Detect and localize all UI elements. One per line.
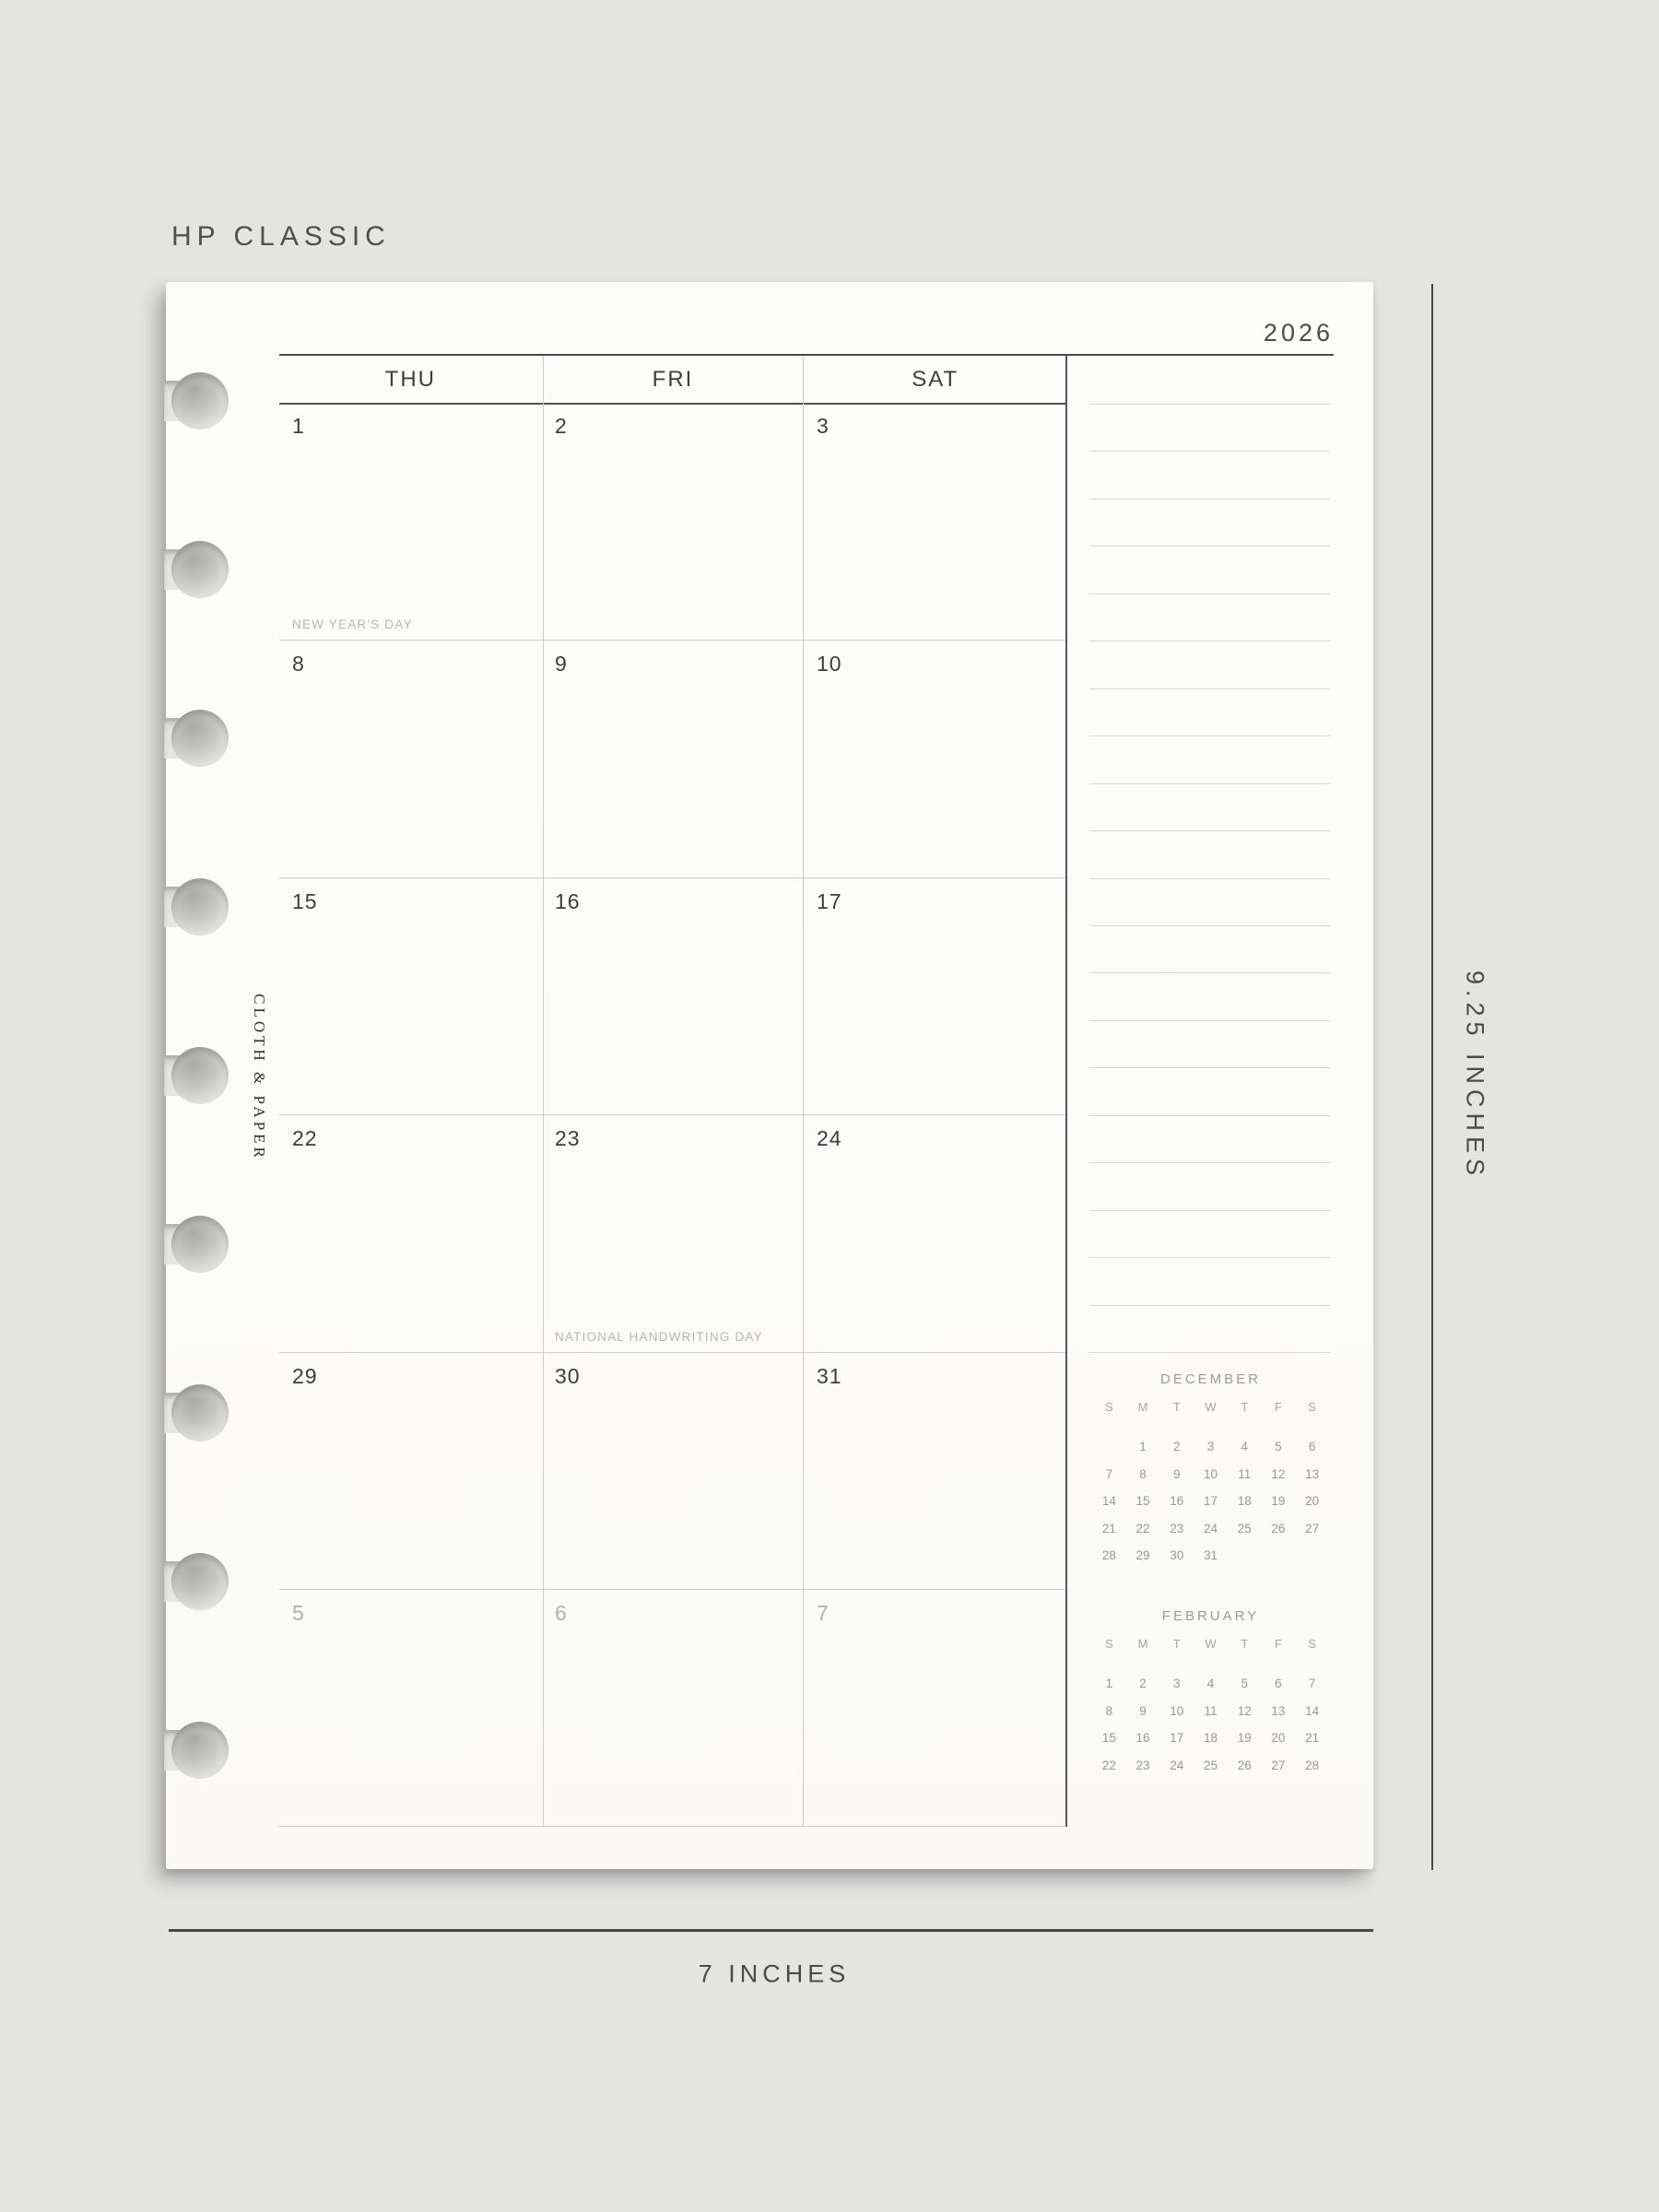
- calendar-cell: 29: [279, 1353, 542, 1590]
- mini-cal-day: 30: [1159, 1542, 1194, 1570]
- disc-icon: [171, 1384, 229, 1441]
- note-line: [1089, 499, 1330, 500]
- disc-icon: [171, 541, 229, 598]
- mini-calendar-title: FEBRUARY: [1092, 1605, 1329, 1629]
- calendar-cell: 1 NEW YEAR'S DAY: [279, 403, 542, 640]
- calendar-cell: 7: [804, 1590, 1066, 1827]
- calendar-cell: 2: [542, 403, 805, 640]
- mini-calendar-title: DECEMBER: [1092, 1368, 1329, 1392]
- note-line: [1089, 1067, 1330, 1068]
- height-measure-label: 9.25 INCHES: [1461, 971, 1489, 1181]
- notes-divider-line: [1065, 356, 1067, 1827]
- mini-cal-day: 4: [1194, 1670, 1228, 1698]
- mini-cal-day: 25: [1228, 1515, 1262, 1543]
- mini-cal-weekday: F: [1262, 1632, 1296, 1656]
- height-measure-line: [1431, 284, 1433, 1870]
- mini-cal-day: 14: [1295, 1698, 1329, 1725]
- date-number: 9: [555, 652, 568, 677]
- mini-cal-day: 16: [1159, 1488, 1194, 1515]
- brand-logo-vertical: CLOTH & PAPER: [250, 994, 268, 1161]
- mini-cal-day: 7: [1092, 1461, 1126, 1488]
- mini-cal-day: 27: [1295, 1515, 1329, 1543]
- mini-cal-weekday: T: [1228, 1632, 1262, 1656]
- disc-icon: [171, 1047, 229, 1104]
- mini-cal-day: 1: [1092, 1670, 1126, 1698]
- mini-cal-weekday: T: [1159, 1632, 1194, 1656]
- mini-cal-weekday: T: [1228, 1395, 1262, 1419]
- mini-cal-day: 9: [1159, 1461, 1194, 1488]
- mini-calendar-december: DECEMBER SMTWTFS 12345678910111213141516…: [1092, 1368, 1329, 1580]
- mini-cal-day: 11: [1194, 1698, 1228, 1725]
- mini-cal-weekday: M: [1126, 1632, 1160, 1656]
- calendar-cell: 15: [279, 878, 542, 1115]
- mini-cal-day: 4: [1228, 1433, 1262, 1461]
- disc-icon: [171, 1722, 229, 1779]
- mini-calendar-grid: 1234567891011121314151617181920212223242…: [1092, 1670, 1329, 1779]
- note-line: [1089, 1257, 1330, 1258]
- monthly-grid: THU FRI SAT 1 NEW YEAR'S DAY 2 3 8: [279, 356, 1066, 1827]
- note-line: [1089, 1352, 1330, 1353]
- disc-icon: [171, 1553, 229, 1610]
- holiday-label: NEW YEAR'S DAY: [292, 618, 413, 631]
- calendar-cell: 23 NATIONAL HANDWRITING DAY: [542, 1115, 805, 1352]
- mini-cal-day: 3: [1159, 1670, 1194, 1698]
- mini-cal-day: 21: [1092, 1515, 1126, 1543]
- note-line: [1089, 735, 1330, 736]
- mini-cal-day: [1295, 1542, 1329, 1570]
- mini-cal-day: 8: [1126, 1461, 1160, 1488]
- mini-cal-day: 9: [1126, 1698, 1160, 1725]
- mini-cal-day: 20: [1295, 1488, 1329, 1515]
- date-number: 17: [817, 889, 842, 914]
- calendar-cell: 22: [279, 1115, 542, 1352]
- note-line: [1089, 925, 1330, 926]
- mini-cal-day: 6: [1295, 1433, 1329, 1461]
- date-number: 5: [292, 1601, 305, 1626]
- weekday-header: FRI: [542, 356, 805, 403]
- mini-cal-day: 3: [1194, 1433, 1228, 1461]
- mini-cal-weekday: F: [1262, 1395, 1296, 1419]
- mini-cal-day: 10: [1159, 1698, 1194, 1725]
- mini-cal-day: 28: [1295, 1752, 1329, 1780]
- date-number: 31: [817, 1364, 842, 1389]
- mini-cal-day: 13: [1262, 1698, 1296, 1725]
- disc-icon: [171, 878, 229, 935]
- mini-cal-day: 27: [1262, 1752, 1296, 1780]
- date-number: 1: [292, 414, 305, 439]
- mini-cal-day: 10: [1194, 1461, 1228, 1488]
- holiday-label: NATIONAL HANDWRITING DAY: [555, 1330, 763, 1344]
- mini-cal-day: 13: [1295, 1461, 1329, 1488]
- mini-cal-day: [1092, 1433, 1126, 1461]
- mini-cal-day: 1: [1126, 1433, 1160, 1461]
- note-line: [1089, 451, 1330, 452]
- disc-icon: [171, 710, 229, 767]
- planner-product-mockup: HP CLASSIC 9.25 INCHES 7 INCHES CLOTH & …: [0, 0, 1659, 2212]
- mini-cal-day: 6: [1262, 1670, 1296, 1698]
- calendar-cell: 3: [804, 403, 1066, 640]
- mini-cal-day: 21: [1295, 1724, 1329, 1752]
- mini-cal-day: 24: [1159, 1752, 1194, 1780]
- note-line: [1089, 1020, 1330, 1021]
- disc-icon: [171, 1216, 229, 1273]
- weekday-header: SAT: [804, 356, 1066, 403]
- date-number: 23: [555, 1126, 581, 1151]
- width-measure-label: 7 INCHES: [699, 1960, 851, 1989]
- mini-cal-day: [1228, 1542, 1262, 1570]
- mini-cal-day: 16: [1126, 1724, 1160, 1752]
- disc-binding-notch: [164, 1047, 230, 1104]
- date-number: 2: [555, 414, 568, 439]
- mini-cal-weekday: S: [1092, 1395, 1126, 1419]
- mini-cal-day: 18: [1194, 1724, 1228, 1752]
- date-number: 22: [292, 1126, 318, 1151]
- mini-cal-day: 22: [1126, 1515, 1160, 1543]
- mini-cal-day: 29: [1126, 1542, 1160, 1570]
- mini-cal-day: 31: [1194, 1542, 1228, 1570]
- notes-panel: [1089, 404, 1330, 1362]
- mini-cal-day: 17: [1159, 1724, 1194, 1752]
- disc-binding-notch: [164, 1722, 230, 1779]
- disc-binding-notch: [164, 1216, 230, 1273]
- mini-cal-day: 14: [1092, 1488, 1126, 1515]
- calendar-cell: 5: [279, 1590, 542, 1827]
- date-number: 16: [555, 889, 581, 914]
- mini-cal-day: 12: [1228, 1698, 1262, 1725]
- date-number: 29: [292, 1364, 318, 1389]
- date-number: 30: [555, 1364, 581, 1389]
- mini-cal-day: 15: [1126, 1488, 1160, 1515]
- calendar-cell: 9: [542, 641, 805, 877]
- mini-cal-day: 15: [1092, 1724, 1126, 1752]
- note-line: [1089, 546, 1330, 547]
- year-label: 2026: [1264, 319, 1334, 347]
- mini-cal-day: 8: [1092, 1698, 1126, 1725]
- note-line: [1089, 594, 1330, 594]
- mini-cal-day: 26: [1228, 1752, 1262, 1780]
- mini-cal-day: 22: [1092, 1752, 1126, 1780]
- disc-binding-notch: [164, 541, 230, 598]
- mini-cal-day: 17: [1194, 1488, 1228, 1515]
- mini-cal-day: 19: [1262, 1488, 1296, 1515]
- note-line: [1089, 972, 1330, 973]
- mini-cal-day: 20: [1262, 1724, 1296, 1752]
- calendar-cell: 30: [542, 1353, 805, 1590]
- date-number: 7: [817, 1601, 829, 1626]
- note-line: [1089, 1115, 1330, 1116]
- mini-cal-day: 7: [1295, 1670, 1329, 1698]
- note-line: [1089, 688, 1330, 689]
- disc-icon: [171, 372, 229, 429]
- mini-cal-day: 19: [1228, 1724, 1262, 1752]
- disc-binding-notch: [164, 1553, 230, 1610]
- disc-binding-notch: [164, 372, 230, 429]
- note-line: [1089, 641, 1330, 641]
- mini-calendar-grid: 1234567891011121314151617181920212223242…: [1092, 1433, 1329, 1570]
- note-line: [1089, 404, 1330, 405]
- width-measure-line: [169, 1929, 1373, 1932]
- disc-binding-notch: [164, 710, 230, 767]
- mini-cal-day: 23: [1126, 1752, 1160, 1780]
- mini-cal-day: 26: [1262, 1515, 1296, 1543]
- mini-cal-weekday: M: [1126, 1395, 1160, 1419]
- calendar-cell: 24: [804, 1115, 1066, 1352]
- date-number: 3: [817, 414, 829, 439]
- mini-cal-day: 18: [1228, 1488, 1262, 1515]
- date-number: 10: [817, 652, 842, 677]
- calendar-cell: 16: [542, 878, 805, 1115]
- mini-cal-weekday: T: [1159, 1395, 1194, 1419]
- note-line: [1089, 1162, 1330, 1163]
- note-line: [1089, 878, 1330, 879]
- mini-cal-weekday: S: [1092, 1632, 1126, 1656]
- date-number: 8: [292, 652, 305, 677]
- mini-cal-day: [1262, 1542, 1296, 1570]
- mini-cal-day: 5: [1262, 1433, 1296, 1461]
- mini-cal-weekday: S: [1295, 1632, 1329, 1656]
- calendar-cell: 8: [279, 641, 542, 877]
- calendar-cell: 10: [804, 641, 1066, 877]
- mini-cal-day: 12: [1262, 1461, 1296, 1488]
- mini-calendar-weekday-row: SMTWTFS: [1092, 1632, 1329, 1656]
- mini-cal-weekday: S: [1295, 1395, 1329, 1419]
- mini-cal-weekday: W: [1194, 1632, 1228, 1656]
- mini-calendar-february: FEBRUARY SMTWTFS 12345678910111213141516…: [1092, 1605, 1329, 1817]
- note-line: [1089, 783, 1330, 784]
- mini-cal-weekday: W: [1194, 1395, 1228, 1419]
- note-line: [1089, 830, 1330, 831]
- note-line: [1089, 1210, 1330, 1211]
- mini-cal-day: 23: [1159, 1515, 1194, 1543]
- note-line: [1089, 1305, 1330, 1306]
- mini-calendar-weekday-row: SMTWTFS: [1092, 1395, 1329, 1419]
- date-number: 24: [817, 1126, 842, 1151]
- mini-cal-day: 2: [1126, 1670, 1160, 1698]
- mini-cal-day: 2: [1159, 1433, 1194, 1461]
- disc-binding-notch: [164, 878, 230, 935]
- mini-cal-day: 24: [1194, 1515, 1228, 1543]
- mini-cal-day: 25: [1194, 1752, 1228, 1780]
- calendar-cell: 31: [804, 1353, 1066, 1590]
- weekday-header: THU: [279, 356, 542, 403]
- calendar-cell: 6: [542, 1590, 805, 1827]
- mini-cal-day: 28: [1092, 1542, 1126, 1570]
- disc-binding-notch: [164, 1384, 230, 1441]
- calendar-cell: 17: [804, 878, 1066, 1115]
- page-size-label: HP CLASSIC: [171, 221, 391, 253]
- weekday-header-row: THU FRI SAT: [279, 356, 1066, 403]
- date-number: 6: [555, 1601, 568, 1626]
- mini-cal-day: 11: [1228, 1461, 1262, 1488]
- date-number: 15: [292, 889, 318, 914]
- mini-cal-day: 5: [1228, 1670, 1262, 1698]
